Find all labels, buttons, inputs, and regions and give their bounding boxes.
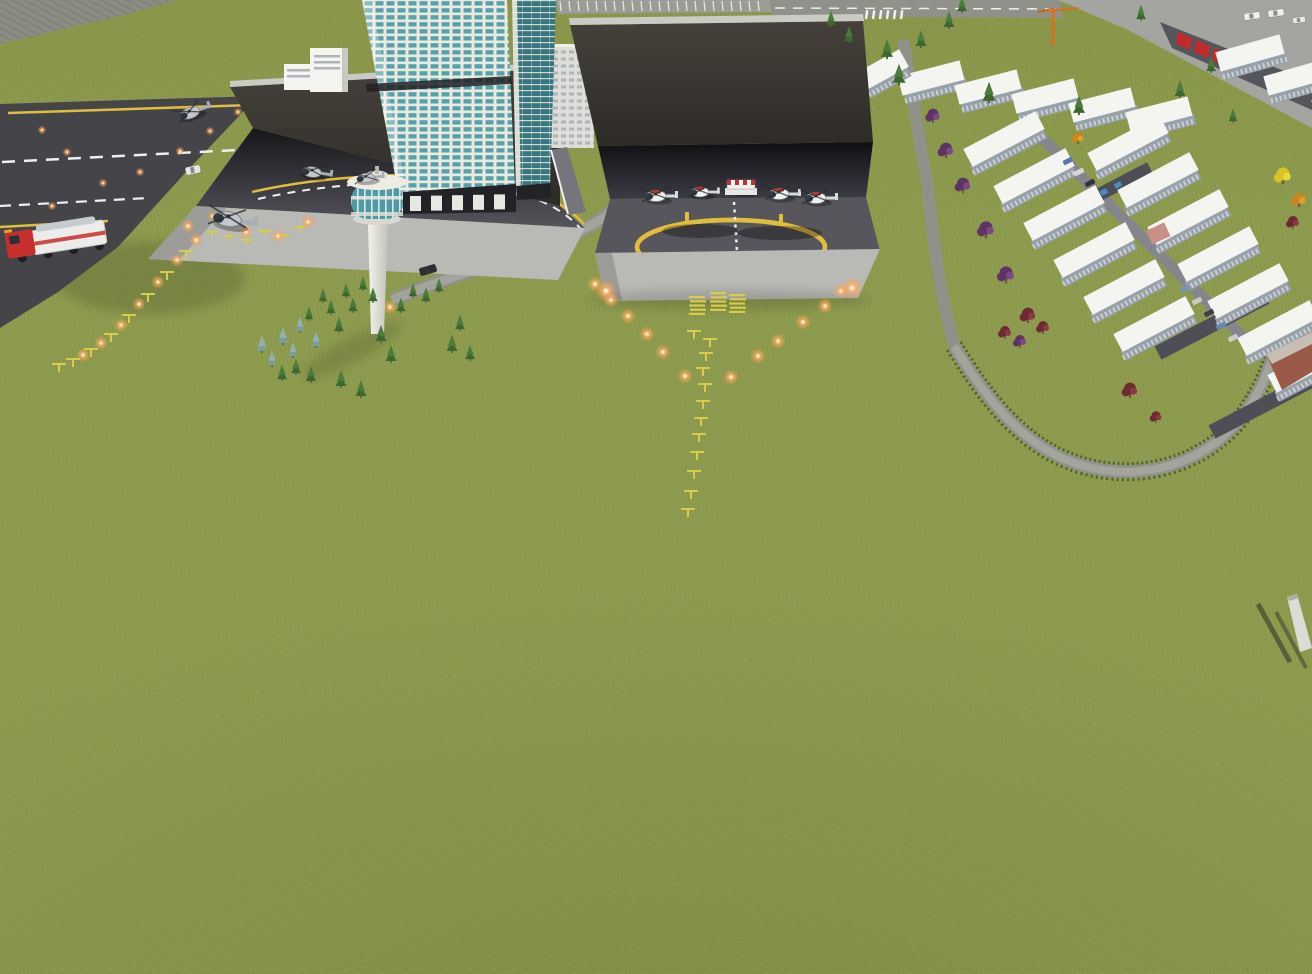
boundary-wall-segments <box>1258 594 1312 668</box>
tree-spruce <box>267 351 277 367</box>
approach-light-stand <box>696 400 710 409</box>
tree-conifer <box>336 370 347 388</box>
tree-orange <box>1291 193 1305 207</box>
approach-light-stand <box>698 383 712 392</box>
tree-orange <box>1072 132 1084 144</box>
central-heliport <box>569 14 880 310</box>
tree-darkred <box>1150 411 1162 423</box>
tree-conifer <box>348 298 357 313</box>
control-tower-shaft <box>368 222 388 334</box>
approach-light-stand <box>684 490 698 499</box>
tree-conifer <box>334 317 344 333</box>
tree-conifer <box>447 335 458 353</box>
approach-light-stand <box>694 417 708 426</box>
tree-darkred <box>1036 321 1049 334</box>
antenna <box>375 166 379 174</box>
approach-light-stand <box>692 433 706 442</box>
tree-conifer <box>356 380 367 398</box>
tree-purple <box>977 221 994 238</box>
tree-conifer <box>291 359 301 375</box>
tree-purple <box>997 266 1014 283</box>
tree-darkred <box>998 326 1011 339</box>
helicopter[interactable] <box>725 180 757 197</box>
tree-spruce <box>278 327 289 345</box>
tree-conifer <box>1229 108 1238 122</box>
tree-conifer <box>386 345 397 363</box>
tree-purple <box>955 178 971 194</box>
tree-spruce <box>257 335 268 353</box>
tree-conifer <box>1175 80 1186 98</box>
tree-darkred <box>1122 383 1138 399</box>
tree-spruce <box>311 332 321 348</box>
approach-light-stand <box>687 330 701 339</box>
tree-conifer <box>277 365 287 381</box>
tree-yellow <box>1274 167 1291 184</box>
tree-conifer <box>881 39 893 59</box>
central-canopy <box>570 21 873 146</box>
approach-light-stand <box>687 470 701 479</box>
tree-purple <box>925 109 939 123</box>
approach-light-stand <box>699 352 713 361</box>
scene-viewport[interactable] <box>0 0 1312 974</box>
tree-darkred <box>1020 308 1036 324</box>
approach-light-stand <box>690 451 704 460</box>
render-canvas <box>0 0 1312 974</box>
tree-conifer <box>465 345 475 361</box>
tree-darkred <box>1286 216 1299 229</box>
approach-light-stand <box>681 508 695 517</box>
tree-purple <box>938 143 954 159</box>
tree-conifer <box>326 300 335 315</box>
tree-spruce <box>288 343 297 358</box>
approach-light-stand <box>703 338 717 347</box>
tree-conifer <box>359 276 368 290</box>
approach-light-stand <box>52 363 66 372</box>
tree-conifer <box>305 306 314 320</box>
tree-spruce <box>295 317 305 333</box>
terrain-slope <box>0 0 178 44</box>
tree-conifer <box>319 288 328 302</box>
approach-light-stand <box>696 367 710 376</box>
tree-purple <box>1013 335 1026 348</box>
tree-conifer <box>455 315 465 331</box>
tree-conifer <box>916 30 927 48</box>
approach-lights-center <box>587 276 863 517</box>
tree-conifer <box>342 283 351 297</box>
